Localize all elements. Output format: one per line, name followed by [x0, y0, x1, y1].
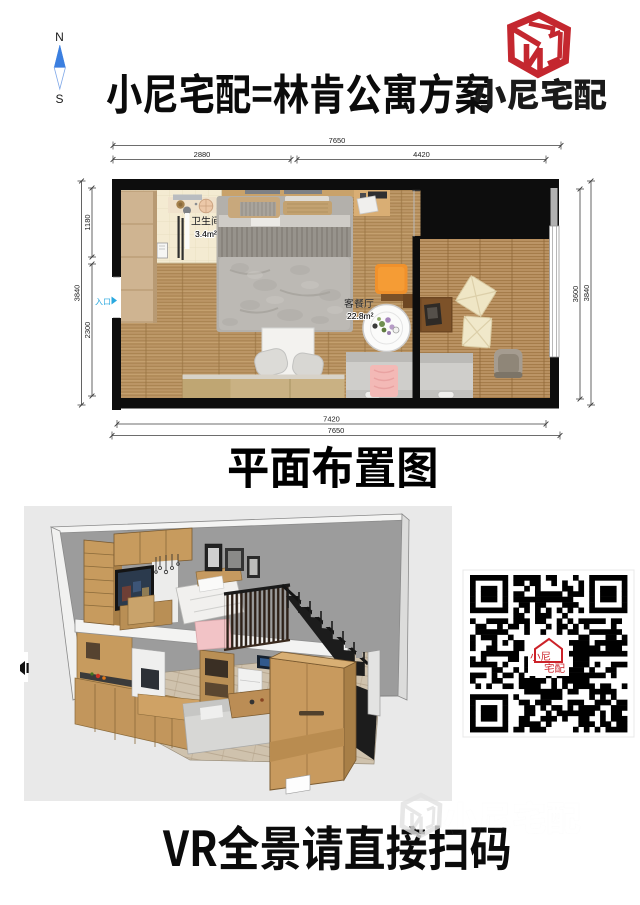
svg-text:3.4m²: 3.4m² — [195, 229, 217, 239]
svg-text:22.8m²: 22.8m² — [347, 311, 374, 321]
svg-text:3840: 3840 — [582, 285, 591, 302]
svg-text:1180: 1180 — [83, 214, 92, 230]
svg-text:3600: 3600 — [571, 286, 580, 303]
svg-text:4420: 4420 — [413, 150, 430, 159]
svg-text:7650: 7650 — [328, 426, 345, 435]
svg-text:3840: 3840 — [73, 285, 82, 302]
svg-text:7650: 7650 — [329, 136, 346, 145]
svg-text:S: S — [55, 92, 63, 106]
svg-text:2880: 2880 — [194, 150, 211, 159]
svg-text:2300: 2300 — [83, 322, 92, 339]
svg-text:7420: 7420 — [323, 415, 340, 424]
svg-text:N: N — [55, 30, 64, 44]
